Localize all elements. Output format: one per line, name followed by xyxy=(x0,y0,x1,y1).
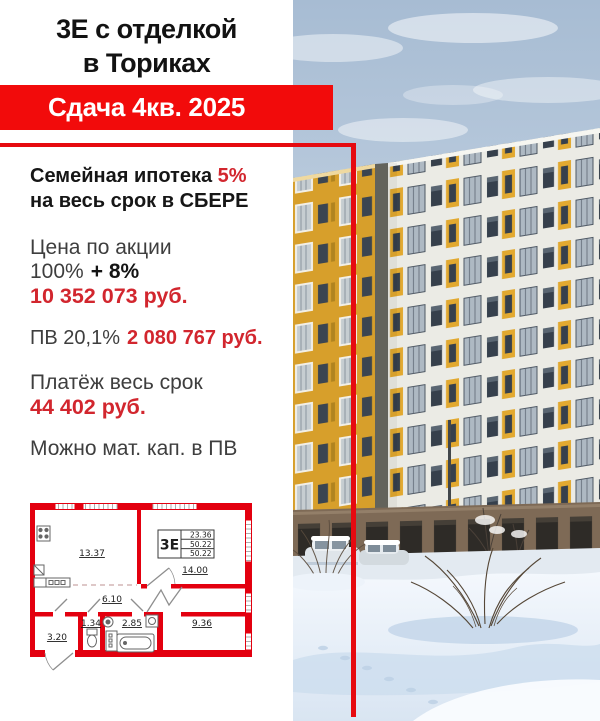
price-label: Цена по акции xyxy=(30,236,300,260)
delivery-banner-label: Сдача 4кв. 2025 xyxy=(0,92,293,123)
room-area-label-kitchen: 13.37 xyxy=(79,549,105,559)
delivery-banner: Сдача 4кв. 2025 xyxy=(0,85,333,130)
payment-section: Платёж весь срок 44 402 руб. xyxy=(30,371,300,419)
payment-value: 44 402 руб. xyxy=(30,395,300,419)
room-area-label-bathroom: 2.85 xyxy=(122,619,142,629)
ad-title-line2: в Ториках xyxy=(0,46,293,80)
bath-sink-icon xyxy=(146,615,158,627)
toilet-icon xyxy=(87,629,97,647)
room-area-label-hall: 6.10 xyxy=(102,595,122,605)
washing-machine-icon xyxy=(103,617,113,627)
payment-label: Платёж весь срок xyxy=(30,371,300,395)
kitchen-counter-icon xyxy=(34,578,70,587)
price-base: 100% xyxy=(30,260,84,283)
red-divider-line xyxy=(0,143,354,147)
room-area-label-entry: 3.20 xyxy=(47,633,67,643)
plan-area-row: 23.36 xyxy=(190,531,212,540)
downpayment-section: ПВ 20,1%2 080 767 руб. xyxy=(30,327,300,350)
mortgage-rate: 5% xyxy=(218,165,247,187)
floor-plan: 3Е 23.36 50.22 50.22 13.37 14.00 6.10 1.… xyxy=(25,500,260,682)
downpayment-value: 2 080 767 руб. xyxy=(127,327,263,349)
kitchen-sink-icon xyxy=(34,565,44,575)
price-section: Цена по акции 100%+ 8% 10 352 073 руб. xyxy=(30,236,300,308)
plan-area-row: 50.22 xyxy=(190,549,212,558)
building-photo xyxy=(293,0,600,721)
price-value: 10 352 073 руб. xyxy=(30,284,300,308)
plan-area-row: 50.22 xyxy=(190,540,212,549)
mortgage-text: Семейная ипотека 5% на весь срок в СБЕРЕ xyxy=(30,164,300,214)
ad-title-line1: 3Е с отделкой xyxy=(0,12,293,46)
red-frame-line xyxy=(351,143,356,717)
downpayment-label: ПВ 20,1% xyxy=(30,327,120,349)
ad-title: 3Е с отделкой в Ториках xyxy=(0,12,293,80)
plan-type-label: 3Е xyxy=(160,538,179,554)
mortgage-label: Семейная ипотека xyxy=(30,165,212,187)
mortgage-line2: на весь срок в СБЕРЕ xyxy=(30,189,300,214)
stove-icon xyxy=(37,526,50,541)
price-bonus: + 8% xyxy=(91,260,139,283)
bathtub-icon xyxy=(117,634,154,652)
bush-shadow xyxy=(388,616,578,644)
matcap-note: Можно мат. кап. в ПВ xyxy=(30,437,300,461)
room-area-label-bedroom2: 9.36 xyxy=(192,619,212,629)
real-estate-ad: 3Е с отделкой в Ториках Сдача 4кв. 2025 … xyxy=(0,0,600,721)
apartment-building xyxy=(293,128,600,560)
room-area-label-bedroom1: 14.00 xyxy=(182,566,208,576)
room-area-label-wc: 1.34 xyxy=(81,619,101,629)
cabinet-icon xyxy=(106,631,117,651)
